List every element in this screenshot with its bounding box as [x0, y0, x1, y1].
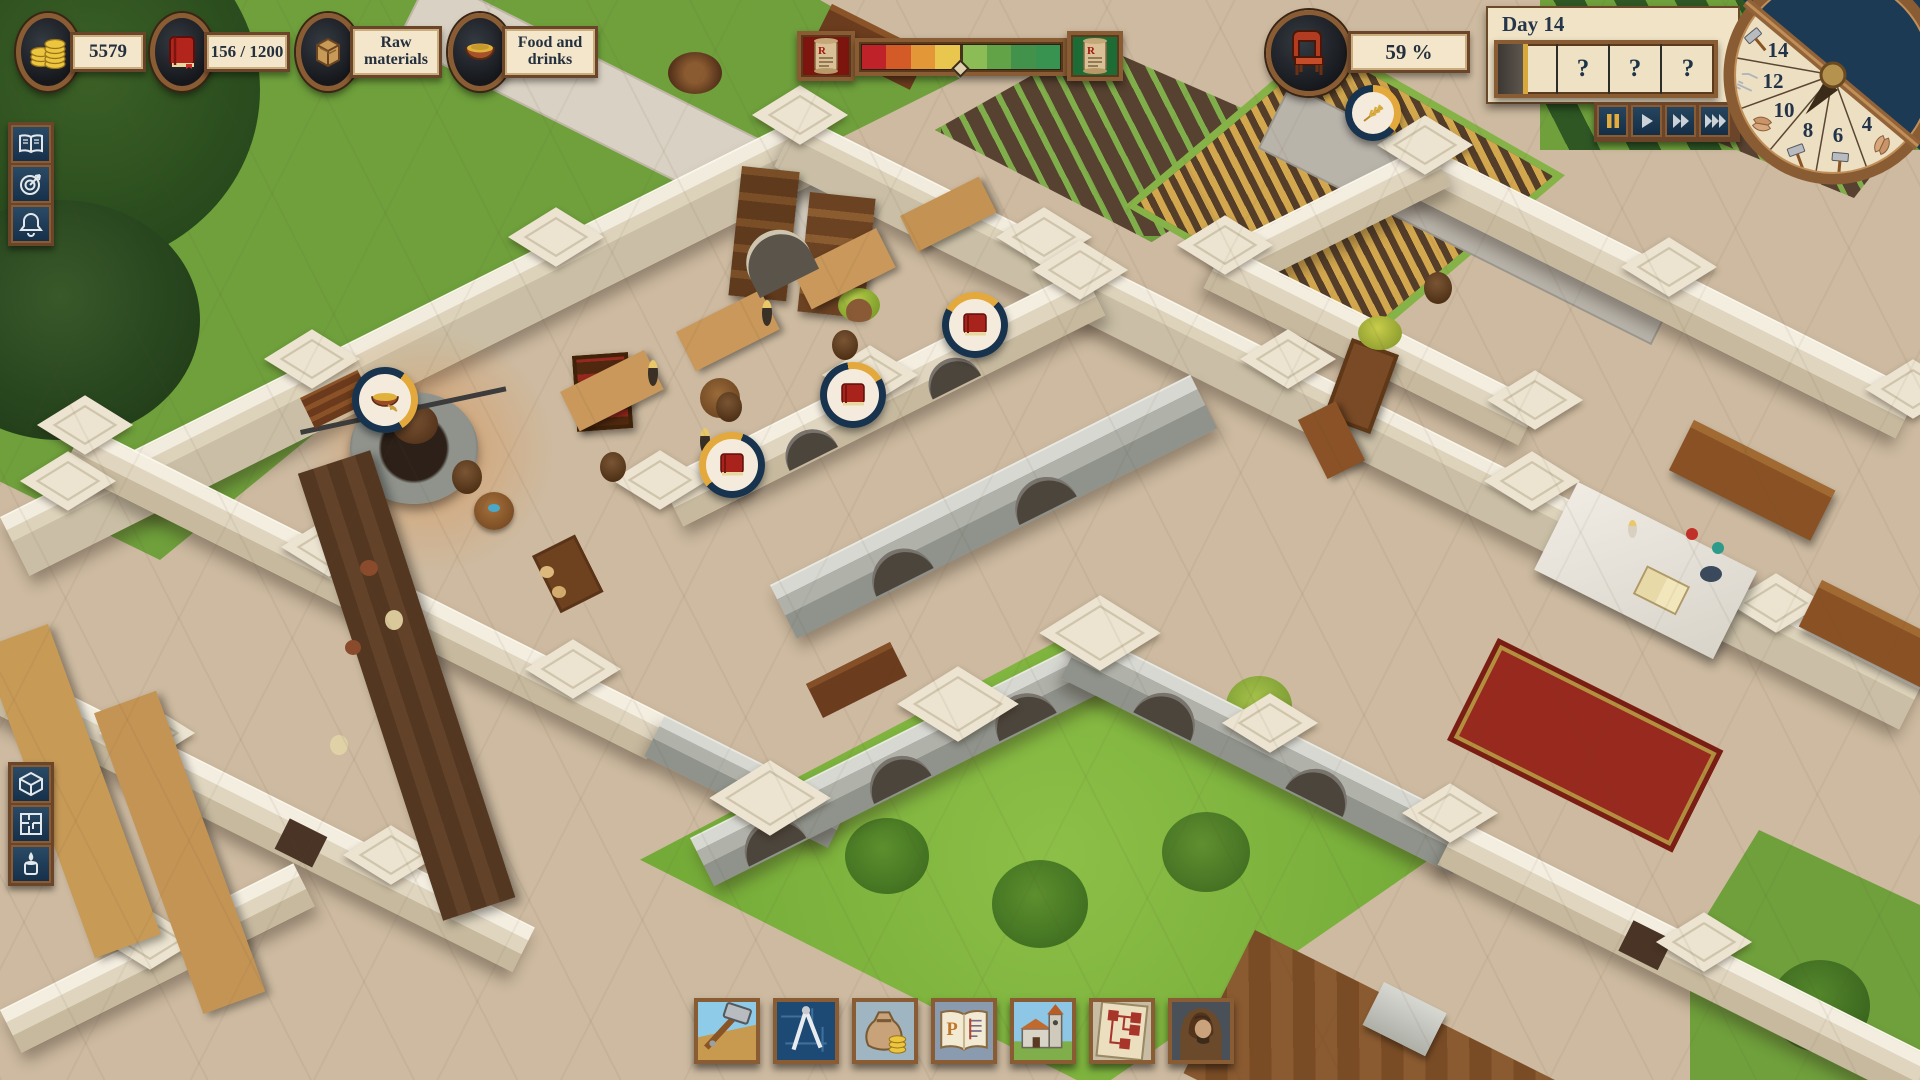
unit-marker-scribe[interactable] [820, 362, 886, 428]
monk-icon [1172, 1002, 1230, 1060]
timeline-slot: ? [1558, 44, 1610, 94]
floorplan-button[interactable] [11, 805, 51, 843]
church-button[interactable] [1010, 998, 1076, 1064]
svg-text:R: R [818, 45, 827, 57]
construction-button[interactable] [694, 998, 760, 1064]
unit-marker-scribe[interactable] [699, 432, 765, 498]
approval-seg [1011, 45, 1035, 69]
chair-icon [1287, 27, 1331, 79]
bell-icon [19, 211, 43, 237]
svg-text:6: 6 [1833, 123, 1844, 147]
floorplan-icon [18, 811, 44, 837]
gold-amount: 5579 [70, 32, 146, 72]
approval-seg [911, 45, 935, 69]
money-sack-icon [856, 1002, 914, 1060]
tech-tree-icon [1093, 1002, 1151, 1060]
wheat-icon [1360, 101, 1386, 125]
chronicle-button[interactable] [11, 125, 51, 163]
wheel-knob [1821, 63, 1845, 87]
sidebar-top [8, 122, 54, 246]
svg-text:4: 4 [1862, 112, 1873, 136]
candle-icon [20, 850, 42, 878]
illuminated-book-icon: P [935, 1002, 993, 1060]
approval-seg [1036, 45, 1060, 69]
pause-icon [1606, 113, 1620, 129]
unit-marker-scribe[interactable] [942, 292, 1008, 358]
game-world [0, 0, 1920, 1080]
sidebar-bottom [8, 762, 54, 886]
floor-tile-lines [0, 0, 1920, 1080]
red-book-icon [717, 452, 747, 478]
pause-button[interactable] [1597, 105, 1628, 137]
svg-text:10: 10 [1774, 98, 1795, 122]
unknown-event: ? [1577, 55, 1590, 83]
objectives-button[interactable] [11, 165, 51, 203]
cube-icon [18, 771, 44, 797]
unit-marker-farmer[interactable] [1345, 85, 1401, 141]
compass-icon [777, 1002, 835, 1060]
approval-seg [987, 45, 1011, 69]
approval-positive-box: R [1067, 31, 1123, 81]
svg-text:R: R [1087, 45, 1096, 57]
food-drinks-label: Food and drinks [502, 26, 598, 78]
atmosphere-button[interactable] [11, 845, 51, 883]
scriptorium-button[interactable]: P [931, 998, 997, 1064]
comfort-value: 59 % [1348, 31, 1470, 73]
blueprints-button[interactable] [773, 998, 839, 1064]
crate-icon [311, 35, 345, 69]
trade-button[interactable] [852, 998, 918, 1064]
hammer-icon [698, 1002, 756, 1060]
petition-scroll-green-icon: R [1078, 37, 1112, 75]
research-button[interactable] [1089, 998, 1155, 1064]
approval-seg [886, 45, 910, 69]
coins-icon [29, 35, 67, 69]
day-title: Day 14 [1502, 12, 1564, 37]
red-book-icon [838, 382, 868, 408]
unknown-event: ? [1629, 55, 1642, 83]
monks-button[interactable] [1168, 998, 1234, 1064]
petition-scroll-red-icon: R [809, 37, 843, 75]
view-mode-button[interactable] [11, 765, 51, 803]
book-icon [18, 133, 44, 155]
svg-text:P: P [946, 1019, 957, 1040]
red-book-icon [166, 34, 198, 70]
notifications-button[interactable] [11, 205, 51, 243]
books-amount: 156 / 1200 [204, 32, 290, 72]
approval-seg [862, 45, 886, 69]
food-bowl-icon [368, 385, 402, 415]
bowl-icon [462, 36, 498, 68]
timeline-slot [1528, 44, 1558, 94]
svg-text:8: 8 [1803, 118, 1814, 142]
raw-materials-label: Raw materials [350, 26, 442, 78]
day-progress-fill [1498, 44, 1523, 94]
target-arrow-icon [18, 171, 44, 197]
church-icon [1014, 1002, 1072, 1060]
schedule-wheel[interactable]: 14 12 10 8 6 4 [1650, 0, 1920, 210]
svg-text:12: 12 [1763, 69, 1784, 93]
approval-negative-box: R [797, 31, 855, 81]
red-book-icon [960, 312, 990, 338]
unit-marker-cook[interactable] [352, 367, 418, 433]
